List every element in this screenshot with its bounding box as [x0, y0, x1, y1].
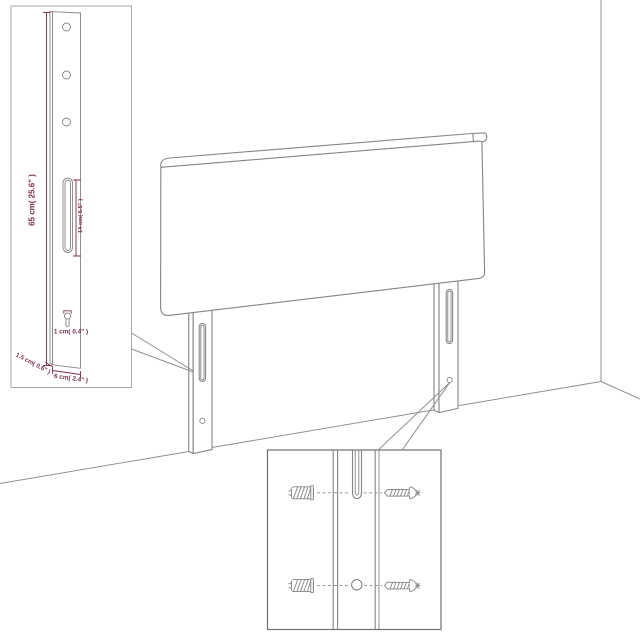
detail-screw-hole [352, 580, 362, 590]
leg-right-screw-hole [447, 377, 452, 382]
callout-leaders [132, 333, 450, 450]
floor-edge-right [601, 382, 640, 400]
wall-plug-bottom [289, 579, 314, 593]
callout-keyhole-circle [64, 313, 70, 319]
leader-leg-callout [132, 333, 194, 372]
floor-edge-left-3 [460, 382, 602, 406]
callout-screw-detail [268, 450, 442, 630]
leg-left-front-face [193, 304, 212, 454]
leg-right-front-face [439, 278, 458, 413]
product-diagram-page: 65 cm( 25.6" ) 14 cm( 5.5" ) 1 cm( 0.4" … [0, 0, 640, 640]
callout-screw-box [268, 450, 442, 630]
leader-screw-callout [378, 383, 450, 451]
headboard-leg-left [189, 304, 212, 454]
leg-left-side-face [189, 306, 194, 454]
callout-hole-top [63, 23, 71, 31]
dim-height-label: 65 cm( 25.6" ) [28, 174, 37, 226]
callout-hole-middle [63, 71, 71, 79]
leg-right-side-face [434, 280, 439, 413]
callout-leg-dimensions: 65 cm( 25.6" ) 14 cm( 5.5" ) 1 cm( 0.4" … [11, 6, 132, 388]
dim-hole-label: 1 cm( 0.4" ) [54, 329, 88, 336]
panel-top-right-notch [473, 133, 474, 141]
leg-left-screw-hole [200, 418, 205, 423]
wall-plug-top [289, 486, 314, 500]
floor-edge-left-1 [0, 451, 191, 483]
floor-edge-left-2 [213, 410, 437, 448]
callout-hole-bottom [63, 118, 71, 126]
dim-slot-label: 14 cm( 5.5" ) [78, 199, 84, 233]
headboard-assembly-diagram: 65 cm( 25.6" ) 14 cm( 5.5" ) 1 cm( 0.4" … [0, 0, 640, 640]
